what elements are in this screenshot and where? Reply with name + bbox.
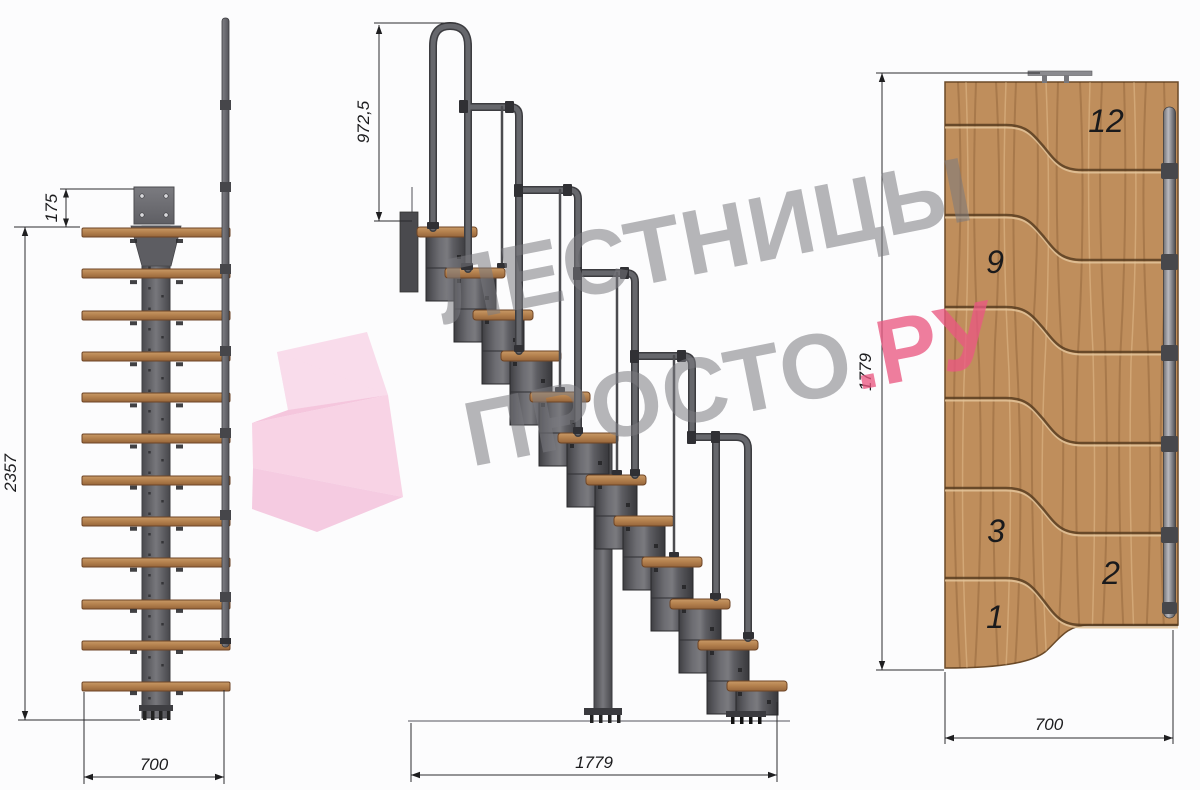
plan-handrail-rod — [1161, 107, 1178, 618]
front-view: 175 2357 700 — [1, 18, 231, 784]
step-label-1: 1 — [986, 599, 1004, 635]
tread — [82, 434, 230, 443]
staircase-technical-drawing: 175 2357 700 — [0, 0, 1200, 790]
step-label-12: 12 — [1088, 103, 1124, 139]
tread — [82, 311, 230, 320]
tread — [82, 352, 230, 361]
dim-1779-side: 1779 — [575, 753, 613, 772]
tread — [82, 228, 230, 237]
dim-175: 175 — [42, 193, 61, 222]
tread — [82, 476, 230, 485]
dim-700-plan: 700 — [1035, 715, 1064, 734]
front-mount-plate — [134, 187, 174, 224]
tread — [82, 269, 230, 278]
tread — [642, 557, 702, 567]
tread — [82, 641, 230, 650]
front-handrail-pole — [220, 18, 231, 650]
dim-972-5: 972,5 — [354, 100, 373, 143]
tread — [727, 681, 787, 691]
dim-700-front: 700 — [140, 755, 169, 774]
watermark-logo — [252, 332, 403, 532]
side-step1-feet — [726, 711, 766, 724]
tread — [82, 682, 230, 691]
tread — [82, 393, 230, 402]
tread — [670, 599, 730, 609]
dim-2357: 2357 — [1, 454, 20, 493]
step-label-9: 9 — [986, 244, 1004, 280]
tread — [614, 516, 674, 526]
tread — [82, 600, 230, 609]
side-wall-bracket — [400, 187, 418, 292]
tread — [82, 517, 230, 526]
step-label-2: 2 — [1101, 555, 1120, 591]
step-label-3: 3 — [987, 513, 1005, 549]
tread — [82, 558, 230, 567]
